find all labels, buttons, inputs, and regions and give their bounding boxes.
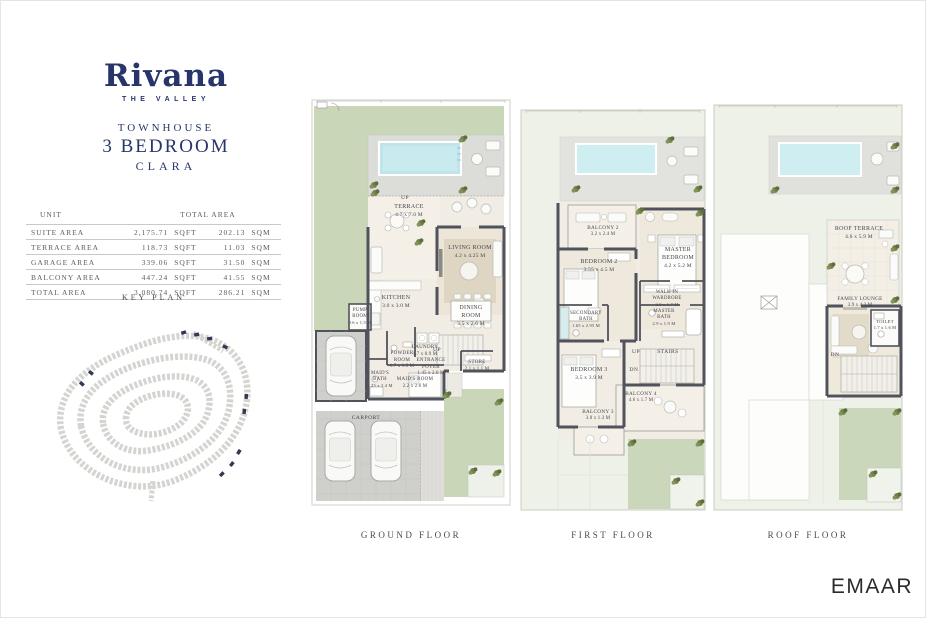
roof-floor-plan <box>713 104 903 511</box>
row-sqm: 41.55 <box>208 273 246 282</box>
ground-floor-caption: GROUND FLOOR <box>311 530 511 540</box>
unit-type: TOWNHOUSE <box>86 122 246 134</box>
emaar-logo: EMAAR <box>827 575 913 599</box>
row-sqft-unit: SQFT <box>168 258 208 267</box>
row-sqft-unit: SQFT <box>168 228 208 237</box>
marker-stairs: STAIRS <box>648 349 688 355</box>
row-label: BALCONY AREA <box>26 273 125 282</box>
dining-table <box>451 301 491 321</box>
table-row: SUITE AREA 2,175.71 SQFT 202.13 SQM <box>26 224 281 239</box>
row-sqm: 11.03 <box>208 243 246 252</box>
row-sqft-unit: SQFT <box>168 273 208 282</box>
brand-logo: Rivana <box>96 61 236 92</box>
key-plan <box>33 311 273 516</box>
brochure-page: Rivana THE VALLEY TOWNHOUSE 3 BEDROOM CL… <box>0 0 926 618</box>
pool <box>576 144 656 174</box>
table-row: TERRACE AREA 118.73 SQFT 11.03 SQM <box>26 239 281 254</box>
row-sqm-unit: SQM <box>245 258 281 267</box>
unit-title-block: TOWNHOUSE 3 BEDROOM CLARA <box>86 122 246 174</box>
first-floor-caption: FIRST FLOOR <box>520 530 706 540</box>
row-label: GARAGE AREA <box>26 258 125 267</box>
marker-dn: DN <box>626 367 642 373</box>
marker-up-terrace: UP <box>395 195 415 201</box>
row-sqm-unit: SQM <box>245 273 281 282</box>
row-sqft: 339.06 <box>125 258 168 267</box>
row-sqft: 118.73 <box>125 243 168 252</box>
col-total-area: TOTAL AREA <box>135 210 281 219</box>
ground-floor: TERRACE 4.7 x 7.0 M UP LIVING ROOM 4.2 x… <box>311 99 511 506</box>
row-sqm: 31.50 <box>208 258 246 267</box>
area-table-header: UNIT TOTAL AREA <box>26 207 281 224</box>
row-sqft: 447.24 <box>125 273 168 282</box>
unit-model: CLARA <box>86 159 246 174</box>
key-plan-map <box>33 311 273 511</box>
pool <box>779 143 861 176</box>
marker-up: UP <box>628 349 644 355</box>
first-floor: BALCONY 2 3.2 x 2.4 M BEDROOM 2 3.55 x 4… <box>520 109 706 511</box>
unit-bedrooms: 3 BEDROOM <box>86 136 246 158</box>
key-plan-title: KEY PLAN <box>26 293 281 302</box>
highlighted-units <box>79 330 248 477</box>
brand-tagline: THE VALLEY <box>96 96 236 103</box>
table-row: BALCONY AREA 447.24 SQFT 41.55 SQM <box>26 269 281 284</box>
row-sqft: 2,175.71 <box>125 228 168 237</box>
roof-floor: ROOF TERRACE 4.6 x 5.9 M FAMILY LOUNGE 3… <box>713 104 903 511</box>
ground-floor-plan <box>311 99 511 506</box>
roof-floor-caption: ROOF FLOOR <box>713 530 903 540</box>
table-row: GARAGE AREA 339.06 SQFT 31.50 SQM <box>26 254 281 269</box>
row-label: SUITE AREA <box>26 228 125 237</box>
area-table: UNIT TOTAL AREA SUITE AREA 2,175.71 SQFT… <box>26 207 281 300</box>
col-unit: UNIT <box>26 210 135 219</box>
row-sqm-unit: SQM <box>245 243 281 252</box>
row-sqm: 202.13 <box>208 228 246 237</box>
row-sqm-unit: SQM <box>245 228 281 237</box>
marker-carport: CARPORT <box>341 415 391 421</box>
row-label: TERRACE AREA <box>26 243 125 252</box>
brand-block: Rivana THE VALLEY <box>96 61 236 103</box>
marker-up-stairs: UP <box>429 347 445 353</box>
marker-dn: DN <box>827 352 843 358</box>
first-floor-plan <box>520 109 706 511</box>
row-sqft-unit: SQFT <box>168 243 208 252</box>
